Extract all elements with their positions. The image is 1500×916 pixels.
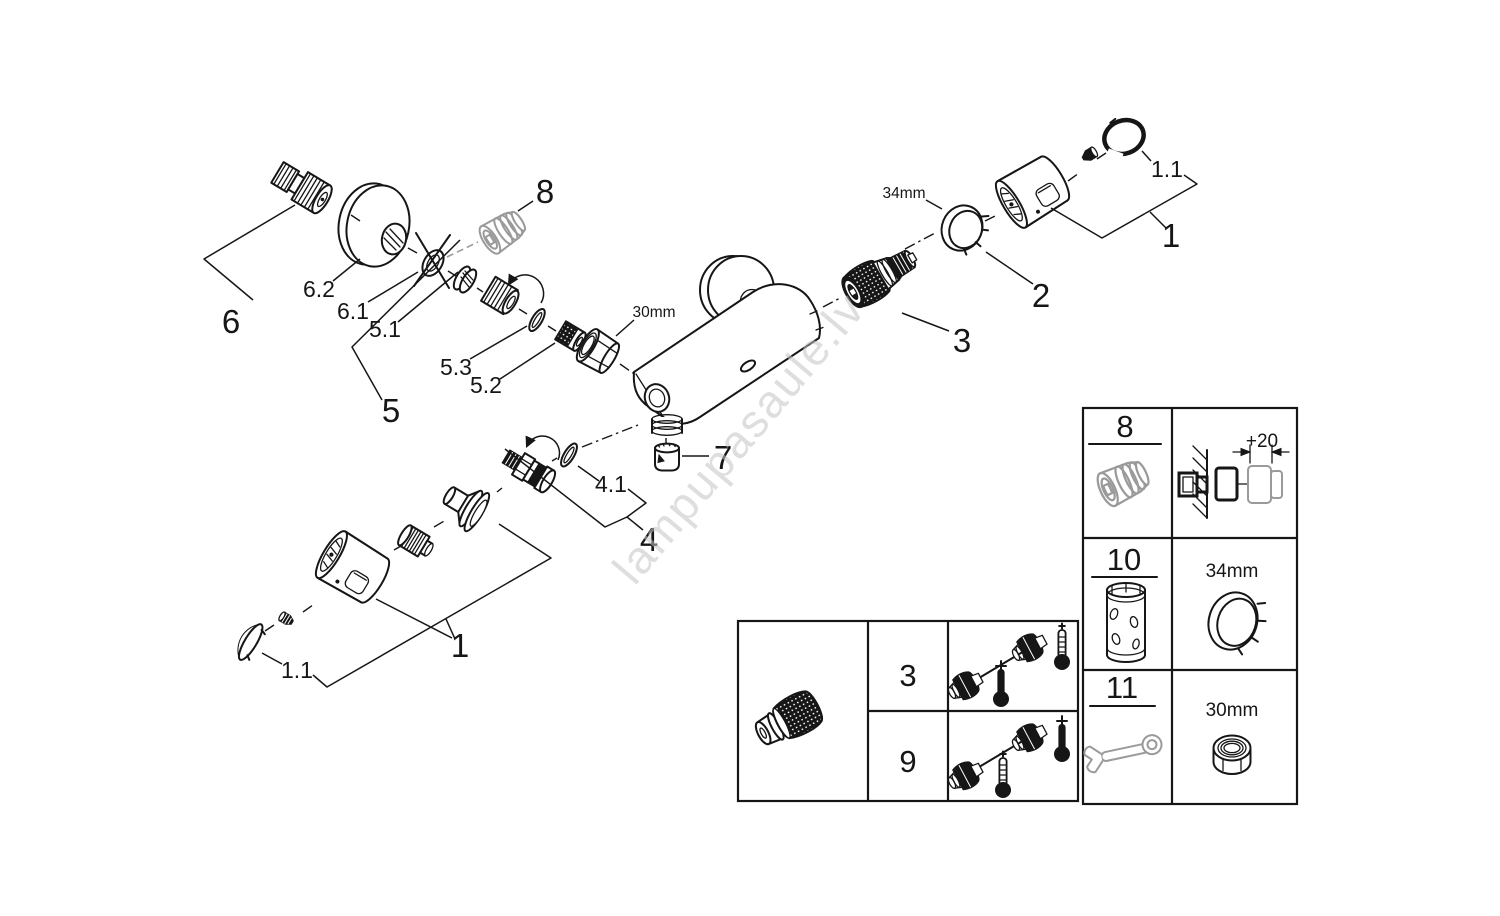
install-icons-row-9 bbox=[944, 716, 1070, 798]
callout-1-bottom: 1 bbox=[451, 627, 469, 664]
part-6-2-escutcheon bbox=[331, 177, 417, 272]
part-1-handle-bottom bbox=[311, 527, 395, 607]
tools-row-11-num: 11 bbox=[1106, 670, 1138, 705]
knurled-adapter-bottom bbox=[396, 523, 437, 560]
axis-part8 bbox=[447, 242, 478, 257]
service-table: 3 9 bbox=[738, 621, 1078, 801]
part-1-handle-top bbox=[991, 151, 1075, 231]
label-30mm-table: 30mm bbox=[1206, 700, 1259, 721]
outlet-threads bbox=[652, 415, 682, 437]
callout-4-1: 4.1 bbox=[595, 471, 627, 497]
part-4-1-oring bbox=[558, 441, 580, 468]
callout-8: 8 bbox=[536, 173, 554, 210]
part-5-3-oring bbox=[526, 307, 547, 334]
part-5-nipple bbox=[481, 277, 522, 317]
wrench-icon bbox=[1083, 732, 1164, 774]
cap-bottom bbox=[232, 619, 269, 663]
callout-5-3: 5.3 bbox=[440, 354, 472, 380]
callout-2: 2 bbox=[1032, 277, 1050, 314]
callout-6: 6 bbox=[222, 303, 240, 340]
screw-top bbox=[1080, 146, 1099, 163]
callout-6-2: 6.2 bbox=[303, 276, 335, 302]
callout-5-2: 5.2 bbox=[470, 372, 502, 398]
flange-piece-bottom bbox=[435, 475, 493, 534]
screw-bottom bbox=[278, 611, 295, 627]
axis-bottom-chain bbox=[265, 425, 638, 631]
label-plus20: +20 bbox=[1246, 431, 1278, 452]
part-8-extension bbox=[476, 206, 530, 257]
service-row-3: 3 bbox=[899, 658, 916, 693]
callout-3: 3 bbox=[953, 322, 971, 359]
label-30mm: 30mm bbox=[632, 304, 675, 321]
part-5-1-strainer bbox=[451, 264, 480, 295]
callout-5: 5 bbox=[382, 392, 400, 429]
callout-1-1-bottom: 1.1 bbox=[281, 657, 313, 683]
callout-5-1: 5.1 bbox=[369, 316, 401, 342]
part-2-stop-ring bbox=[935, 199, 994, 259]
ring-34-icon bbox=[1201, 586, 1271, 658]
callout-1-top: 1 bbox=[1162, 217, 1180, 254]
nut-30-icon bbox=[1214, 736, 1251, 775]
exploded-parts-diagram: 6 6.2 6.1 5 5.1 5.3 5.2 8 30mm 7 4.1 4 1… bbox=[0, 0, 1500, 916]
part-6-s-union bbox=[269, 159, 335, 216]
part-7-flow-regulator bbox=[655, 444, 679, 471]
callout-1-1-top: 1.1 bbox=[1151, 156, 1183, 182]
service-cartridge-icon bbox=[749, 687, 826, 753]
socket-tool-icon bbox=[1107, 583, 1145, 662]
part-1-1-cap-top bbox=[1097, 111, 1149, 162]
tools-extension-icon bbox=[1094, 456, 1154, 509]
tools-row-10-num: 10 bbox=[1107, 542, 1141, 577]
callout-6-1: 6.1 bbox=[337, 298, 369, 324]
label-34mm: 34mm bbox=[882, 185, 925, 202]
diagram-canvas: 6 6.2 6.1 5 5.1 5.3 5.2 8 30mm 7 4.1 4 1… bbox=[0, 0, 1500, 916]
part-4-aquadimmer bbox=[500, 446, 558, 494]
tools-table: 8 +20 10 bbox=[1083, 408, 1297, 804]
tools-row-8-num: 8 bbox=[1116, 409, 1133, 444]
service-row-9: 9 bbox=[899, 744, 916, 779]
install-icons-row-3 bbox=[944, 624, 1070, 708]
wall-extension-diagram: +20 bbox=[1179, 431, 1289, 518]
label-34mm-table: 34mm bbox=[1206, 561, 1259, 582]
